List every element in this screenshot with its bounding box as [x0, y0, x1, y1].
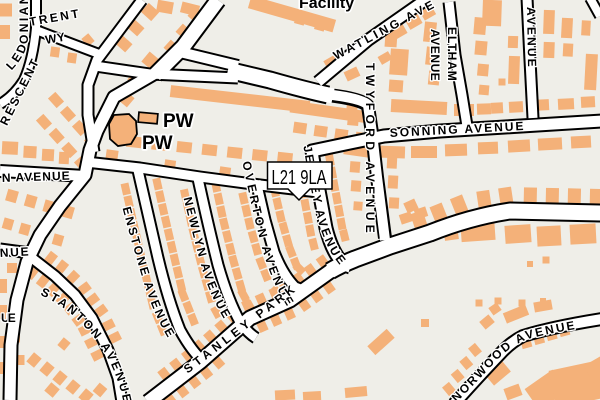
svg-text:PW: PW — [163, 111, 194, 132]
svg-text:L21 9LA: L21 9LA — [272, 167, 327, 189]
svg-text:ELTHAM: ELTHAM — [445, 27, 459, 81]
svg-text:PW: PW — [142, 133, 173, 154]
svg-text:Facility: Facility — [299, 0, 354, 12]
svg-text:UE: UE — [1, 311, 16, 325]
svg-text:AVENUE: AVENUE — [428, 29, 442, 81]
svg-text:NUE: NUE — [0, 244, 29, 259]
svg-text:N AVENUE: N AVENUE — [2, 169, 70, 185]
